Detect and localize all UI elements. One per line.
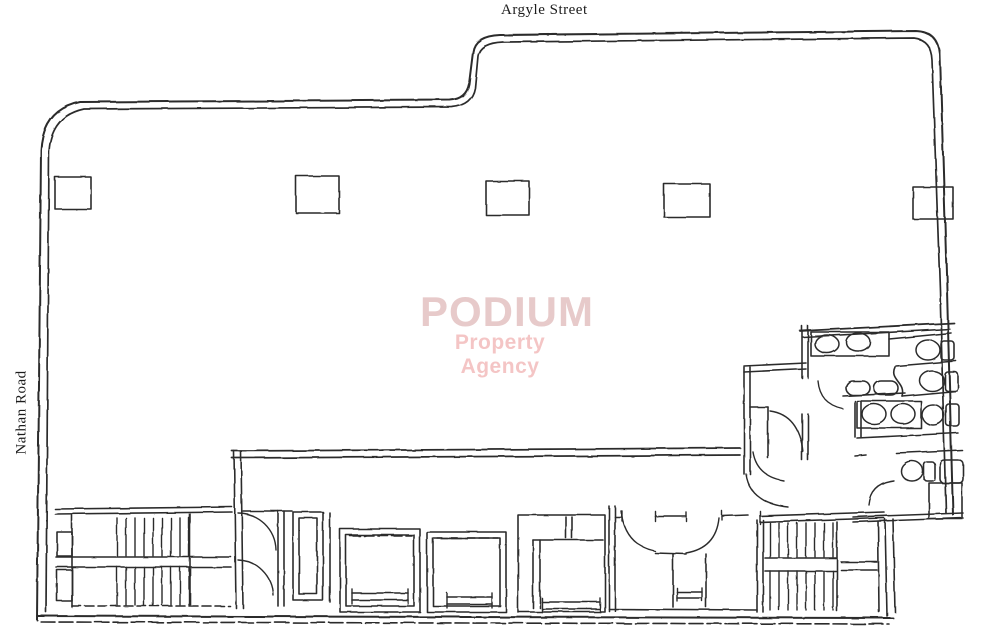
lift-car	[427, 532, 506, 612]
rooms-bottom-wall	[609, 609, 757, 610]
stair1-block-top-2	[55, 512, 232, 514]
stair2-lobby-wall	[878, 521, 879, 612]
main-corridor-wall-1	[232, 448, 740, 451]
outline-bottom-outer	[37, 616, 893, 618]
corridor-bottom-door-arc	[746, 474, 788, 507]
lift-car-inner	[346, 535, 414, 606]
floorplan-svg	[0, 0, 1000, 636]
column	[296, 176, 339, 213]
lobby-left-wall-2	[241, 451, 243, 608]
lift-car-inner	[433, 538, 500, 606]
duct	[57, 532, 72, 556]
bottom-right-wall-1	[885, 519, 887, 616]
stall-wall-2	[896, 361, 956, 366]
toilet-tank	[946, 404, 959, 426]
column	[913, 187, 953, 219]
room-door-arc-1	[621, 511, 655, 551]
lobby-left-wall-1	[234, 451, 236, 608]
toilet-bowl	[901, 461, 923, 481]
wc-door-arc	[869, 481, 894, 505]
duct	[57, 570, 72, 601]
road-label-left: Nathan Road	[14, 358, 31, 468]
lobby-door-arc-1	[238, 513, 276, 550]
toilet-tank	[945, 372, 958, 391]
column	[664, 184, 710, 217]
washroom-divider-wall	[857, 433, 958, 438]
room-mid-wall	[655, 553, 686, 554]
outline-bottom-inner	[41, 622, 889, 624]
floorplan-page: Argyle Street Nathan Road PODIUM Propert…	[0, 0, 1000, 636]
toilet-bowl	[922, 405, 944, 425]
closet-door-arc	[770, 411, 803, 452]
wash-basin	[862, 404, 886, 424]
main-corridor-wall-2	[232, 455, 740, 458]
washroom-door-arc	[818, 381, 843, 409]
shaft-inner	[299, 518, 317, 594]
outline-inner	[46, 38, 946, 612]
toilet-bowl	[916, 340, 940, 360]
hand-basin	[846, 381, 870, 395]
stair2-top-wall-1	[760, 512, 884, 516]
column	[486, 181, 529, 215]
wash-basin	[891, 404, 915, 424]
toilet-bowl	[920, 371, 944, 391]
wash-basin	[815, 335, 839, 353]
stair1-block-top-1	[55, 507, 232, 509]
corridor-top-wall-2	[744, 369, 806, 372]
rooms-top-wall-c	[722, 515, 748, 516]
room-door-arc-2	[686, 518, 719, 553]
street-label-top: Argyle Street	[501, 2, 588, 19]
floorplan-linework	[37, 31, 963, 624]
corridor-top-wall-1	[744, 363, 806, 366]
wash-basin	[846, 333, 870, 351]
shaft	[293, 512, 323, 600]
column	[55, 177, 91, 209]
toilet-tank	[924, 462, 935, 481]
wc-room-wall-a	[855, 455, 866, 456]
bottom-right-wall-2	[893, 519, 895, 612]
sink-counter	[857, 401, 921, 428]
washroom-bottom-wall-1	[853, 513, 963, 517]
lift-car	[518, 515, 605, 612]
